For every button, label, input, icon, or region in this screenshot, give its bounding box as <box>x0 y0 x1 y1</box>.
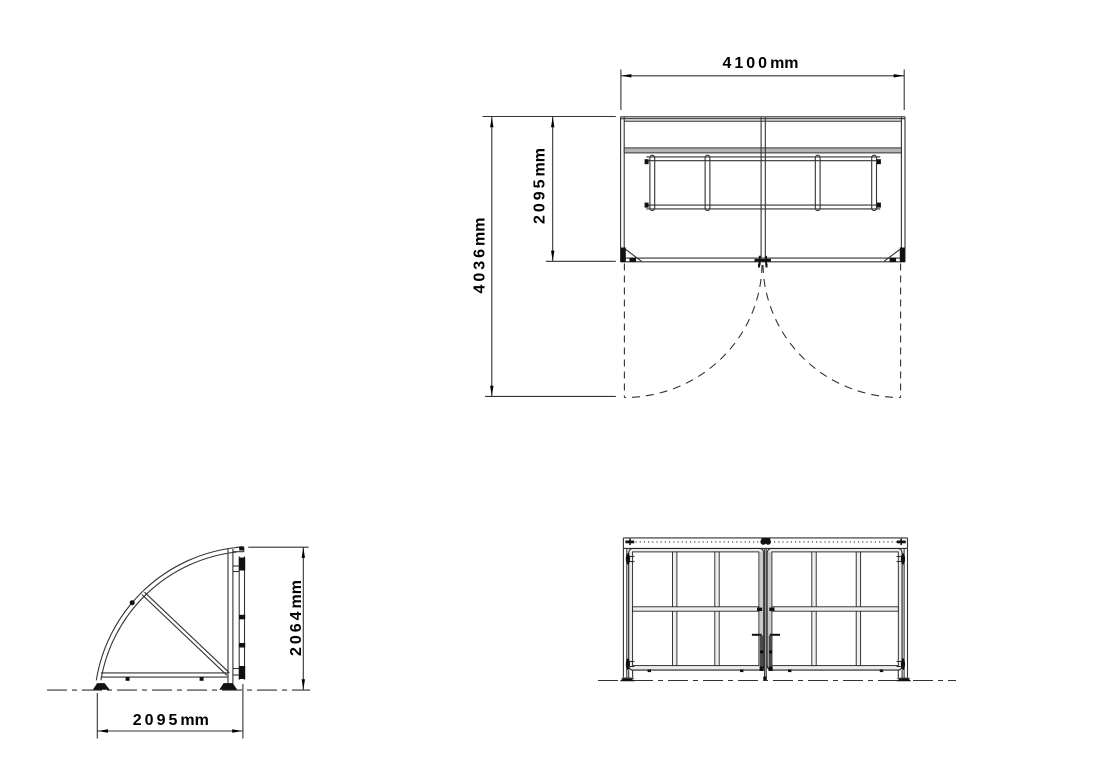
svg-text:2095mm: 2095mm <box>532 148 549 224</box>
svg-text:2064mm: 2064mm <box>288 580 305 656</box>
svg-text:4100mm: 4100mm <box>722 55 798 72</box>
svg-text:4036mm: 4036mm <box>472 217 489 293</box>
svg-text:2095mm: 2095mm <box>133 712 209 729</box>
